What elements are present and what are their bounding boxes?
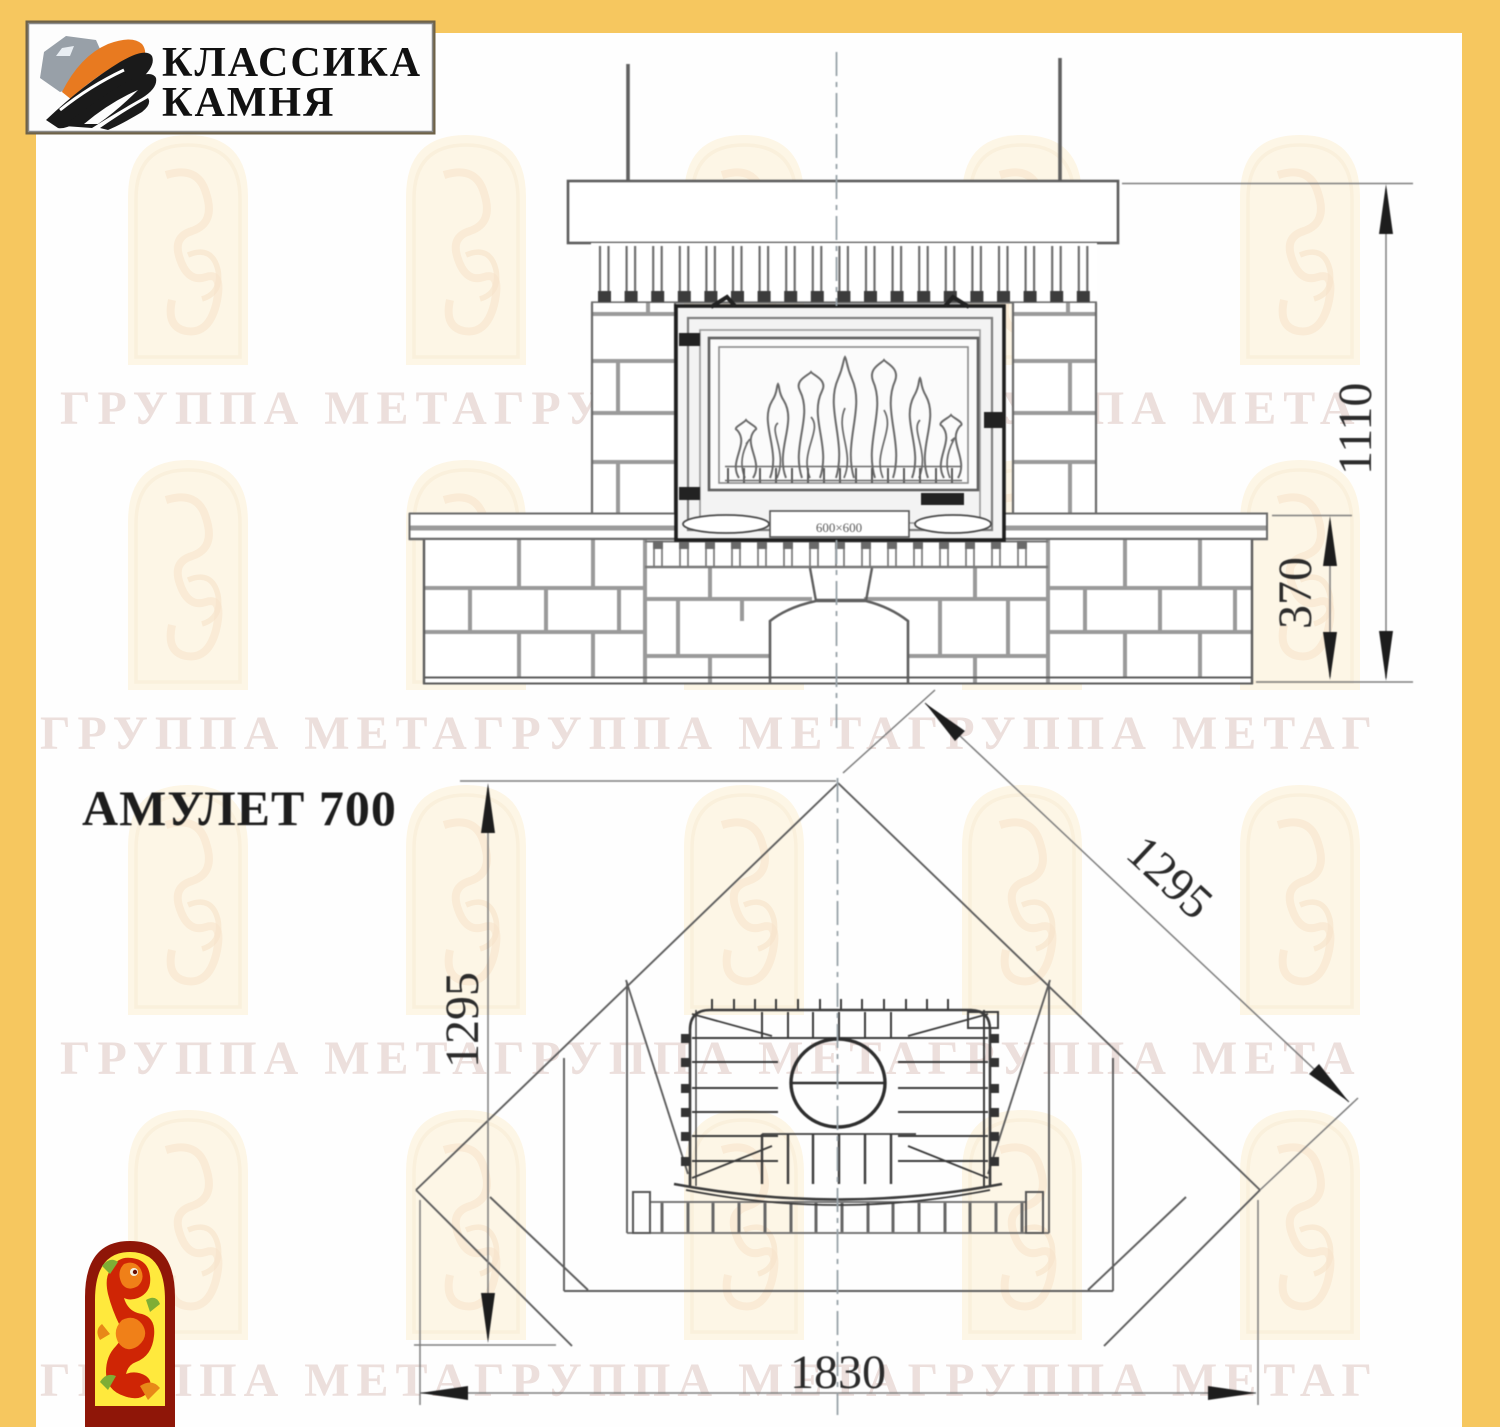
- svg-text:1295: 1295: [436, 972, 489, 1068]
- svg-text:600×600: 600×600: [816, 520, 862, 535]
- svg-text:370: 370: [1269, 557, 1322, 629]
- svg-text:ГРУППА МЕТАГРУППА МЕТАГРУППА М: ГРУППА МЕТАГРУППА МЕТАГРУППА МЕТАГ: [40, 1354, 1379, 1407]
- svg-text:ГРУППА МЕТАГРУППА МЕТАГРУППА М: ГРУППА МЕТАГРУППА МЕТАГРУППА МЕТАГ: [40, 707, 1379, 760]
- svg-text:1295: 1295: [1116, 825, 1222, 929]
- svg-text:ГРУППА МЕТАГРУППА МЕТАГРУППА М: ГРУППА МЕТАГРУППА МЕТАГРУППА МЕТА: [60, 1032, 1362, 1085]
- svg-text:АМУЛЕТ 700: АМУЛЕТ 700: [82, 780, 397, 836]
- svg-text:1110: 1110: [1329, 383, 1382, 475]
- svg-text:КАМНЯ: КАМНЯ: [162, 80, 335, 126]
